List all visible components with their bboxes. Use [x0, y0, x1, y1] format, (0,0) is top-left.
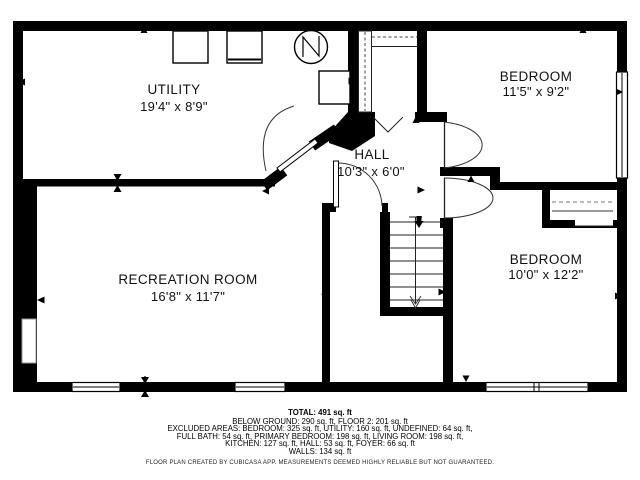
door-bedroom-top [444, 122, 482, 168]
dryer-icon [227, 31, 262, 63]
bedroom-top-dimensions: 11'5" x 9'2" [503, 84, 570, 99]
utility-label: UTILITY [147, 82, 200, 97]
bedroom-top-label: BEDROOM [500, 69, 573, 84]
bedroom-bottom-dimensions: 10'0" x 12'2" [508, 267, 583, 282]
disclaimer-text: FLOOR PLAN CREATED BY CUBICASA APP. MEAS… [0, 460, 640, 467]
recreation-label: RECREATION ROOM [118, 272, 257, 287]
door-bedroom-bottom [444, 178, 493, 218]
recreation-dimensions: 16'8" x 11'7" [151, 289, 225, 304]
hall-label: HALL [354, 147, 389, 162]
bedroom-bottom-label: BEDROOM [510, 252, 583, 267]
furnace-icon [319, 71, 350, 104]
water-heater-icon [295, 31, 328, 64]
left-wall-niche [22, 319, 36, 363]
window-bedroom-top-right [617, 72, 628, 178]
window-recreation-right [235, 383, 285, 392]
area-summary: TOTAL: 491 sq. ft BELOW GROUND: 290 sq. … [0, 409, 640, 467]
doorway-v-marker [373, 117, 403, 132]
stairs-down-icon [390, 217, 443, 308]
utility-dimensions: 19'4" x 8'9" [140, 99, 208, 114]
closet-rod-shelf [552, 202, 613, 211]
hall-dimensions: 10'3" x 6'0" [337, 164, 405, 179]
door-utility [263, 106, 318, 172]
window-recreation-left [72, 383, 120, 392]
window-bedroom-bottom [486, 383, 588, 392]
walls-area-line: WALLS: 134 sq. ft [0, 448, 640, 456]
washer-icon [173, 31, 208, 63]
